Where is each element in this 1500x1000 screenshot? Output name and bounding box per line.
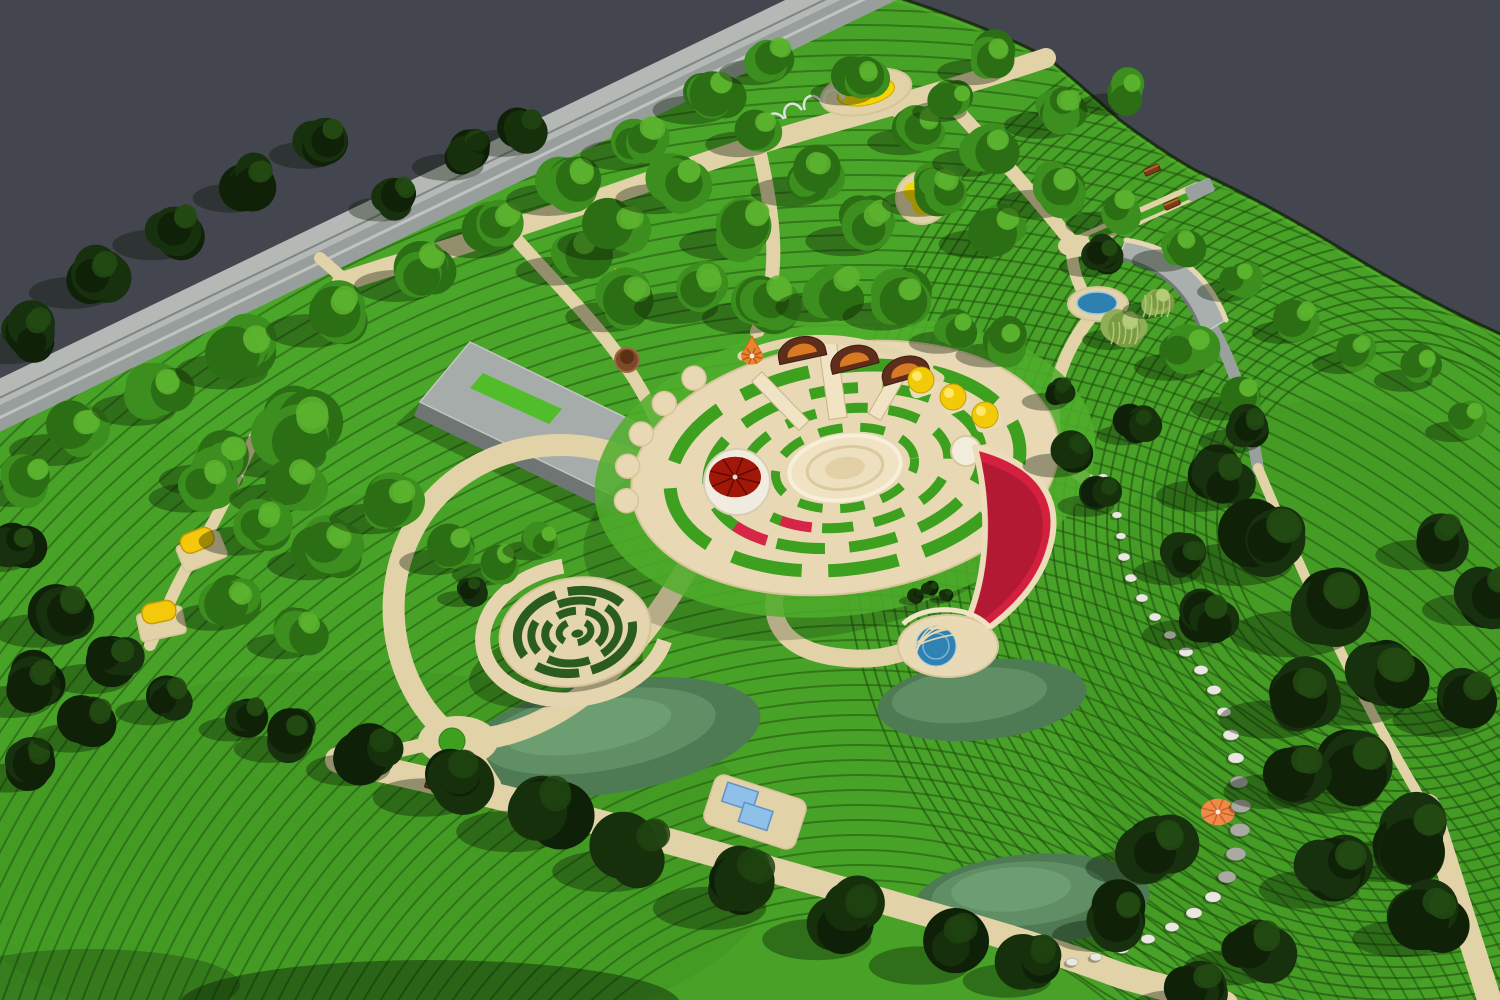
- tree-highlight: [1102, 478, 1118, 494]
- stepping-stone: [1136, 594, 1148, 602]
- tree-highlight: [167, 677, 186, 696]
- tree-highlight: [1198, 964, 1222, 988]
- yellow-dome-highlight: [976, 406, 986, 416]
- tree-highlight: [14, 528, 33, 547]
- stepping-stone: [1230, 823, 1250, 836]
- tree-highlight: [112, 639, 135, 662]
- tree-highlight: [745, 201, 769, 225]
- stepping-stone: [1226, 847, 1246, 860]
- yellow-dome-highlight: [944, 388, 954, 398]
- tree-highlight: [1293, 667, 1322, 696]
- tree-highlight: [834, 269, 857, 292]
- tree-highlight: [232, 584, 252, 604]
- tree-highlight: [954, 86, 970, 102]
- tree-highlight: [1338, 841, 1367, 870]
- tree-highlight: [1299, 301, 1316, 318]
- tree-highlight: [946, 590, 952, 596]
- stepping-stone: [1207, 685, 1221, 694]
- tree-highlight: [451, 528, 470, 547]
- tree-highlight: [1054, 168, 1076, 190]
- tree-highlight: [540, 780, 571, 811]
- tree-highlight: [1055, 380, 1068, 393]
- parasol-tip: [1216, 810, 1221, 815]
- tree-highlight: [989, 130, 1009, 150]
- tree-highlight: [289, 459, 312, 482]
- stepping-stone: [1112, 512, 1122, 519]
- yellow-dome: [972, 402, 998, 428]
- tree-highlight: [1291, 747, 1317, 773]
- tree-highlight: [1057, 90, 1077, 110]
- yellow-dome-highlight: [912, 371, 922, 381]
- stepping-stone: [1116, 533, 1126, 540]
- tree-highlight: [1030, 939, 1055, 964]
- tree-canopy: [921, 583, 932, 594]
- yellow-dome: [940, 384, 966, 410]
- tree-highlight: [766, 275, 790, 299]
- tree-highlight: [60, 589, 85, 614]
- tree-highlight: [392, 480, 415, 503]
- tree-highlight: [1117, 892, 1141, 916]
- stepping-stone: [1228, 753, 1244, 764]
- tree-highlight: [772, 38, 791, 57]
- tree-highlight: [845, 887, 876, 918]
- stepping-stone: [1205, 892, 1221, 903]
- tree-highlight: [450, 750, 479, 779]
- tree-highlight: [322, 119, 342, 139]
- round-planter-top: [620, 350, 634, 364]
- yellow-dome: [908, 367, 934, 393]
- tree-highlight: [28, 459, 48, 479]
- parasol-tip: [750, 354, 755, 359]
- stepping-stone: [1186, 908, 1202, 919]
- tree-highlight: [1116, 190, 1135, 209]
- tree-highlight: [1072, 436, 1090, 454]
- tree-highlight: [1124, 75, 1141, 92]
- tree-highlight: [954, 314, 971, 331]
- tree-highlight: [1240, 379, 1258, 397]
- tree-highlight: [1183, 541, 1202, 560]
- tree-highlight: [678, 160, 701, 183]
- tree-highlight: [1413, 805, 1444, 836]
- tree-highlight: [988, 38, 1007, 57]
- tree-highlight: [522, 109, 542, 129]
- stepping-stone: [1165, 922, 1179, 931]
- tree-highlight: [900, 278, 922, 300]
- parasol-tip: [733, 475, 738, 480]
- tree-highlight: [636, 820, 667, 851]
- stepping-stone: [1141, 934, 1155, 943]
- tree-highlight: [1429, 892, 1457, 920]
- park-scene-canvas: [0, 0, 1500, 1000]
- tree-highlight: [1237, 263, 1253, 279]
- tree-highlight: [1254, 925, 1280, 951]
- stepping-stone: [1149, 613, 1161, 621]
- tree-highlight: [1467, 403, 1483, 419]
- small-orange-parasol: [741, 347, 763, 364]
- tree-highlight: [1177, 230, 1194, 247]
- tree-highlight: [806, 152, 828, 174]
- tree-highlight: [1466, 672, 1492, 698]
- tree-highlight: [468, 577, 480, 589]
- tree-highlight: [949, 913, 978, 942]
- park-3d-render: [0, 0, 1500, 1000]
- tree-highlight: [1205, 596, 1228, 619]
- stepping-stone: [1090, 953, 1102, 961]
- orange-parasol: [1201, 799, 1235, 826]
- tree-highlight: [1218, 457, 1242, 481]
- tree-highlight: [859, 61, 877, 79]
- tree-highlight: [542, 527, 556, 541]
- tree-highlight: [90, 699, 112, 721]
- tree-highlight: [1325, 574, 1360, 609]
- tree-highlight: [1353, 337, 1369, 353]
- tree-highlight: [931, 583, 938, 590]
- tree-highlight: [1438, 514, 1461, 537]
- tree-highlight: [251, 160, 273, 182]
- stepping-stone: [1194, 665, 1208, 674]
- tree-highlight: [296, 396, 328, 428]
- tree-highlight: [331, 289, 356, 314]
- tree-highlight: [757, 113, 776, 132]
- tree: [0, 454, 50, 508]
- red-parasol-pavilion: [704, 449, 770, 515]
- tree-highlight: [369, 728, 393, 752]
- tree-highlight: [174, 206, 197, 229]
- tree-highlight: [259, 502, 281, 524]
- tree-highlight: [1355, 737, 1387, 769]
- tree-highlight: [1381, 649, 1415, 683]
- tree-highlight: [286, 715, 306, 735]
- tree-highlight: [1246, 408, 1264, 426]
- tree-canopy: [1163, 336, 1192, 365]
- tree-highlight: [1419, 351, 1436, 368]
- tree-highlight: [28, 307, 51, 330]
- tree-highlight: [1102, 241, 1118, 257]
- stepping-stone: [1118, 553, 1130, 561]
- tree-highlight: [205, 463, 227, 485]
- tree-highlight: [1001, 324, 1019, 342]
- tree-highlight: [1270, 511, 1302, 543]
- tree-highlight: [1157, 824, 1183, 850]
- tree-highlight: [743, 851, 775, 883]
- tree-highlight: [246, 698, 264, 716]
- tree-highlight: [1189, 329, 1209, 349]
- tree-highlight: [698, 269, 722, 293]
- tree-highlight: [397, 180, 415, 198]
- stepping-stone: [1066, 958, 1078, 966]
- tree-highlight: [1136, 410, 1151, 425]
- tree-highlight: [301, 615, 320, 634]
- tree-highlight: [92, 254, 116, 278]
- stepping-stone: [1218, 871, 1236, 883]
- tree-highlight: [642, 117, 665, 140]
